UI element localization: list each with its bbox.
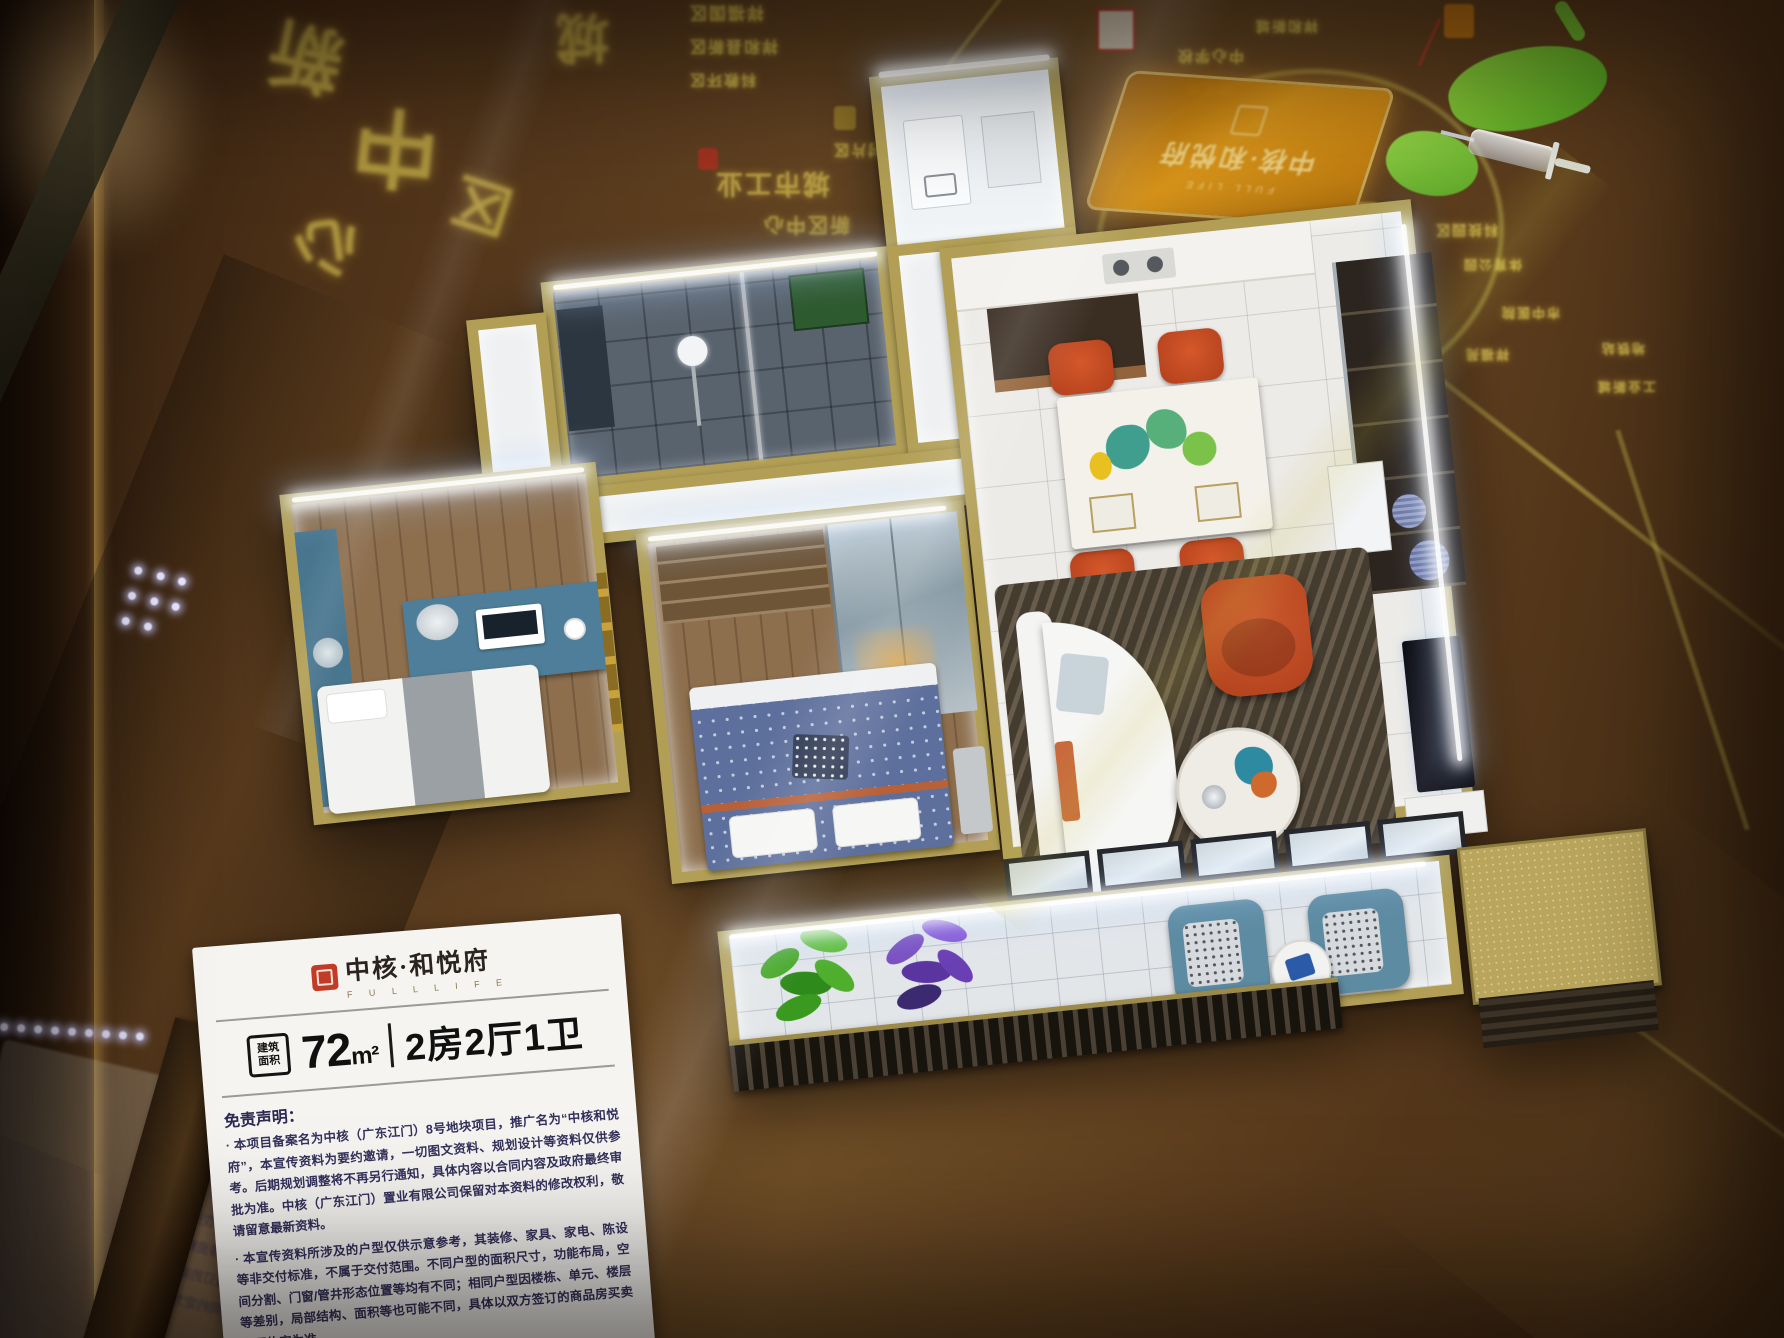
floor-area-badge: 建筑 面积: [246, 1033, 291, 1078]
syringe-plunger: [1554, 158, 1591, 174]
reflected-map-label: 祥福苑: [1464, 346, 1509, 365]
shower-head: [676, 335, 709, 368]
bed-throw-blanket: [402, 671, 485, 806]
pillow: [832, 797, 922, 848]
reflected-road-line: [1615, 430, 1750, 831]
bathroom-wall-art: [788, 268, 869, 332]
unit-layout-value: 2房2厅1卫: [403, 1003, 585, 1071]
reflected-map-label: 地铁站: [1600, 340, 1645, 359]
reflected-map-label: 市中医院: [1500, 304, 1560, 323]
reflected-map-character: 新: [258, 1, 353, 121]
unit-spec-row: 建筑 面积 72m² 2房2厅1卫: [217, 1001, 614, 1086]
monitor-screen: [482, 610, 538, 640]
pillow: [728, 808, 818, 859]
coffee-cup: [563, 617, 587, 641]
bedroom-bench: [952, 746, 993, 835]
water-heater-appliance: [903, 115, 972, 211]
reflected-park-shape: [1552, 0, 1587, 43]
reflected-map-icon: [1444, 4, 1474, 38]
patterned-cushion: [1182, 918, 1244, 988]
shower-glass-partition: [740, 272, 764, 459]
woven-vase: [1390, 492, 1427, 529]
bookshelf-unit: [656, 529, 831, 624]
reflected-map-label: 工业新城: [1596, 378, 1656, 397]
table-plant-green: [1144, 407, 1188, 451]
reflected-map-label: 祥福国区: [688, 2, 764, 27]
floor-area-value: 72m²: [299, 1019, 380, 1079]
double-bed: [689, 662, 955, 871]
model-master-bedroom: [635, 500, 1000, 885]
teapot: [1201, 784, 1227, 810]
utility-cabinet: [981, 111, 1042, 188]
accent-cushion: [792, 734, 850, 780]
monitor: [475, 603, 545, 650]
coffee-table-flowers-orange: [1250, 770, 1279, 799]
photo-apartment-model-display: 新 中 心 区 城 祥福国区 祥和县新区 科教环区 城中村片区 祥福新城 城中心…: [0, 0, 1784, 1338]
place-setting: [1194, 482, 1242, 522]
control-panel: [923, 173, 957, 198]
model-living-dining-room: [939, 199, 1475, 859]
tablet-on-table: [1284, 952, 1316, 981]
orange-armchair: [1198, 571, 1316, 699]
television: [1402, 635, 1476, 792]
cooktop: [1102, 247, 1177, 284]
model-entry-utility-room: [869, 57, 1077, 258]
brand-seal-icon: [311, 963, 339, 991]
reflected-red-line: [1418, 18, 1442, 67]
refrigerator: [1327, 461, 1392, 556]
sofa-cushion: [1056, 653, 1110, 716]
duvet-fold: [689, 662, 938, 710]
brand-logo: 中核·和悦府 F U L L L I F E: [211, 931, 608, 1010]
model-study-bedroom: [279, 462, 630, 825]
ac-hood-gold-block: [1457, 828, 1662, 1005]
woven-vase: [1407, 538, 1451, 582]
badge-line: 面积: [258, 1054, 281, 1068]
unit-info-placard: 中核·和悦府 F U L L L I F E 建筑 面积 72m² 2房2厅1卫…: [192, 914, 658, 1338]
reflected-map-label: 祥和县新区: [688, 36, 778, 60]
divider: [388, 1023, 395, 1067]
single-bed: [317, 664, 551, 815]
bathroom-door: [556, 305, 615, 431]
reflected-led-dot-cluster: [118, 566, 193, 648]
shower-stem: [691, 366, 701, 426]
reflected-map-character: 城: [556, 2, 610, 81]
dining-table: [1056, 377, 1273, 549]
place-setting: [1089, 493, 1137, 533]
wall-moon-art: [312, 636, 345, 669]
window-pane: [1377, 811, 1467, 862]
dining-chair: [1156, 327, 1225, 385]
desk-lamp: [415, 602, 461, 642]
pillow: [325, 688, 388, 724]
dining-chair: [1047, 338, 1116, 396]
armchair-seat: [1219, 615, 1299, 680]
